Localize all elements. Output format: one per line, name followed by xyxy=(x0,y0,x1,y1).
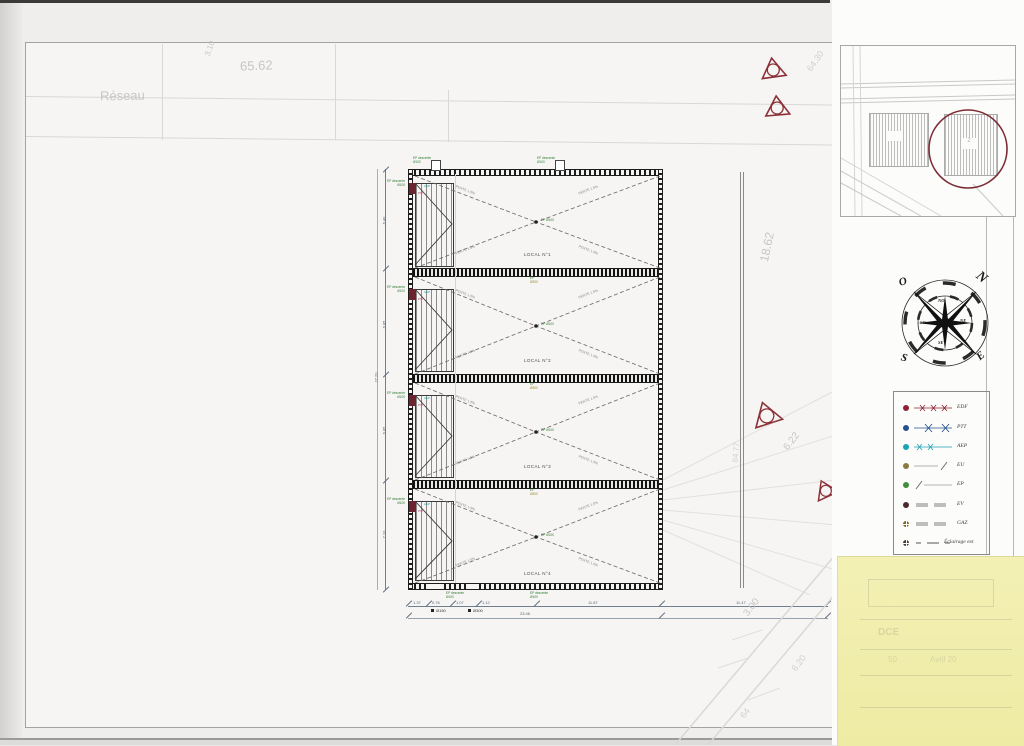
compass-se-label: SE xyxy=(938,340,944,345)
dim-left-bay3: 6.85 xyxy=(381,427,386,435)
ep-line2: Ø100 xyxy=(397,183,405,187)
bay3-label: LOCAL N°3 xyxy=(524,464,551,469)
site-dim-top: 65.62 xyxy=(240,57,273,73)
legend-dot-eu xyxy=(903,463,909,469)
dim-b1: 1.37 xyxy=(413,600,421,605)
wall-interior-3 xyxy=(409,480,661,489)
downspout-icon xyxy=(555,160,565,171)
utility-block xyxy=(409,501,416,512)
dim-bottom-total: 23.46 xyxy=(520,611,530,616)
utility-block xyxy=(409,395,416,406)
door-gap-2 xyxy=(466,584,479,589)
dim-b5: 11.87 xyxy=(588,600,598,605)
aep-tag: AEP xyxy=(424,396,430,400)
bay2-drain-note: EP Ø100 xyxy=(541,323,554,327)
site-line-v2 xyxy=(335,44,336,140)
legend-pattern-aep xyxy=(914,442,952,452)
dim-left-total: 27.20 xyxy=(374,372,379,382)
ep-annotation-top: EP descenteØ100 xyxy=(537,157,555,164)
titleblock-ghost-dce: DCE xyxy=(878,627,899,638)
bay4-drain-note: EP Ø100 xyxy=(541,534,554,538)
ptt-tag: PTT xyxy=(418,191,424,195)
legend-dot-ev xyxy=(903,502,909,508)
scanned-drawing-sheet: 65.62 3.10 Réseau xyxy=(0,0,1024,745)
bay2-label: LOCAL N°2 xyxy=(524,358,551,363)
bay4-label: LOCAL N°4 xyxy=(524,571,551,576)
legend-pattern-edf xyxy=(914,403,952,413)
strip-note-line2: Ø300 xyxy=(530,280,538,284)
compass-nw-label: NO xyxy=(938,298,945,303)
legend-pattern-ptt xyxy=(914,423,952,433)
wall-top xyxy=(409,169,661,176)
legend-label-edf: EDF xyxy=(957,404,968,410)
ep-line2: Ø100 xyxy=(397,289,405,293)
titleblock-ghost-box xyxy=(868,579,994,607)
bay3-drain-note: EP Ø100 xyxy=(541,429,554,433)
aep-tag: AEP xyxy=(424,290,430,294)
pipe-marker xyxy=(431,609,434,612)
legend-pattern-ev xyxy=(914,500,952,510)
wall-interior-2 xyxy=(409,374,661,383)
ep-annotation-bottom: EP descenteØ100 xyxy=(446,592,464,599)
ep-annotation-top: EP descenteØ100 xyxy=(413,157,431,164)
strip1-note: EPØ300 xyxy=(530,277,538,284)
ep-line2: Ø100 xyxy=(413,160,421,164)
sticky-note: DCE 50 Avril 20 xyxy=(837,556,1024,746)
bay4-roof-plan xyxy=(408,489,662,583)
utility-block xyxy=(409,183,416,194)
legend-pattern-ep xyxy=(914,480,952,490)
bay1-label: LOCAL N°1 xyxy=(524,252,551,257)
strip-note-line2: Ø300 xyxy=(530,386,538,390)
scan-top-edge xyxy=(0,0,830,3)
aep-tag: AEP xyxy=(424,502,430,506)
wall-interior-1 xyxy=(409,268,661,277)
dim-left-chain xyxy=(385,169,386,590)
faint-roads xyxy=(660,540,836,745)
titleblock-ghost-line xyxy=(860,619,1012,620)
titleblock-ghost-line xyxy=(860,649,1012,650)
dim-left-bay4: 7.10 xyxy=(381,531,386,539)
location-inset-map: 2 xyxy=(840,45,1016,217)
survey-marker-icon xyxy=(757,54,788,82)
ep-line2: Ø100 xyxy=(397,501,405,505)
legend-dot-ptt xyxy=(903,425,909,431)
road-label: Réseau xyxy=(100,88,145,104)
titleblock-ghost-scale: 50 xyxy=(888,655,897,664)
dim-b3: 1.07 xyxy=(456,600,464,605)
compass-ne-label: NE xyxy=(960,318,966,323)
highlight-circle-icon xyxy=(927,108,1009,190)
legend-label-ptt: PTT xyxy=(957,424,966,430)
ptt-tag: PTT xyxy=(418,403,424,407)
legend-pattern-gaz xyxy=(914,519,952,529)
scan-left-edge xyxy=(0,3,22,745)
ep-line2: Ø100 xyxy=(446,595,454,599)
legend-dot-eclairage xyxy=(903,540,909,546)
legend-label-ep: EP xyxy=(957,481,964,487)
dim-b4: 1.12 xyxy=(482,600,490,605)
ptt-tag: PTT xyxy=(418,509,424,513)
legend-box: EDF PTT AEP EU EP EV GAZ Éclairage ext xyxy=(893,391,990,555)
aep-tag: AEP xyxy=(424,184,430,188)
ptt-tag: PTT xyxy=(418,297,424,301)
survey-marker-icon xyxy=(762,93,792,119)
legend-dot-ep xyxy=(903,482,909,488)
site-line-v3 xyxy=(448,90,449,142)
door-gap-1 xyxy=(429,584,442,589)
ep-annotation-bottom: EP descenteØ100 xyxy=(530,592,548,599)
compass-sw-label: SO xyxy=(920,320,926,325)
dim-b2: 0.76 xyxy=(432,600,440,605)
legend-label-gaz: GAZ xyxy=(957,520,967,526)
ep-line2: Ø100 xyxy=(397,395,405,399)
strip-note-line2: Ø300 xyxy=(530,492,538,496)
dim-left-bay1: 6.40 xyxy=(381,217,386,225)
strip2-note: EPØ300 xyxy=(530,383,538,390)
downspout-icon xyxy=(431,160,441,171)
site-line-v1 xyxy=(162,44,163,140)
legend-dot-aep xyxy=(903,444,909,450)
legend-label-eu: EU xyxy=(957,462,964,468)
legend-label-eclairage: Éclairage ext xyxy=(944,539,973,545)
titleblock-ghost-date: Avril 20 xyxy=(930,655,957,664)
legend-dot-edf xyxy=(903,405,909,411)
legend-dot-gaz xyxy=(903,521,909,527)
bay1-drain-note: EP Ø100 xyxy=(541,219,554,223)
pipe-marker xyxy=(468,609,471,612)
titleblock-ghost-line xyxy=(860,675,1012,676)
inset-building-1-core xyxy=(887,131,901,141)
wall-bottom xyxy=(409,583,661,590)
legend-label-aep: AEP xyxy=(957,443,967,449)
ep-line2: Ø100 xyxy=(537,160,545,164)
legend-pattern-eu xyxy=(914,461,952,471)
titleblock-ghost-line xyxy=(860,707,1012,708)
pipe-marker-label: Ø150 xyxy=(436,608,446,613)
legend-label-ev: EV xyxy=(957,501,964,507)
pipe-marker-label: Ø300 xyxy=(473,608,483,613)
dim-left-bay2: 6.85 xyxy=(381,321,386,329)
utility-block xyxy=(409,289,416,300)
strip3-note: EPØ300 xyxy=(530,489,538,496)
ep-line2: Ø100 xyxy=(530,595,538,599)
